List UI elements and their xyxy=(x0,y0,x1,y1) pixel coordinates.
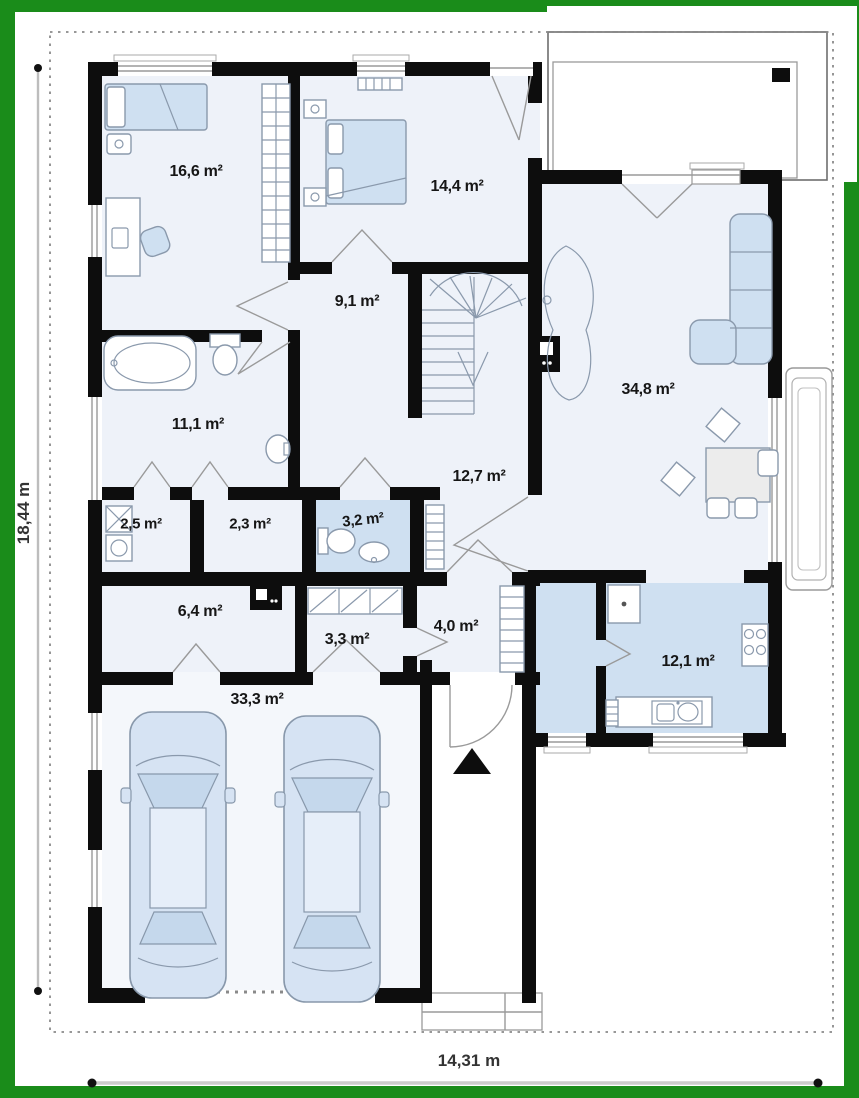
dimension-line-bottom xyxy=(88,1079,823,1088)
room-label-utility: 6,4 m² xyxy=(178,603,222,621)
toilet-bathroom xyxy=(210,334,240,375)
radiator-kitchen xyxy=(606,700,618,726)
kitchen-counter-sink xyxy=(616,697,712,727)
dimension-line-left xyxy=(34,64,42,995)
bathtub xyxy=(104,336,196,390)
room-label-bedroom-1: 16,6 m² xyxy=(169,163,222,181)
room-label-garage: 33,3 m² xyxy=(230,691,283,709)
dimension-height-label: 18,44 m xyxy=(14,482,34,544)
window-left-garage2 xyxy=(88,850,102,907)
room-label-hall-upper: 9,1 m² xyxy=(335,293,379,311)
room-label-vestibule: 4,0 m² xyxy=(434,618,478,636)
window-left-garage1 xyxy=(88,713,102,770)
window-bedroom2-top xyxy=(353,55,409,76)
dimension-width-label: 14,31 m xyxy=(438,1051,500,1071)
closet-hall xyxy=(426,505,444,569)
sink-bathroom xyxy=(266,435,290,463)
window-kitchen1 xyxy=(544,733,590,753)
window-kitchen2 xyxy=(649,733,747,753)
window-left-bedroom1 xyxy=(88,205,102,257)
closet-vestibule xyxy=(500,586,524,672)
room-label-bedroom-2: 14,4 m² xyxy=(430,178,483,196)
floor-plan-drawing xyxy=(0,0,859,1098)
terrace-steps-right xyxy=(786,368,832,590)
room-label-living-room: 34,8 m² xyxy=(621,381,674,399)
wardrobe-storage33 xyxy=(308,588,402,614)
room-label-bathroom: 11,1 m² xyxy=(172,416,224,434)
nightstand-bedroom2-b xyxy=(304,188,326,206)
desk-bedroom1 xyxy=(106,198,140,276)
nightstand-bedroom1 xyxy=(107,134,131,154)
fridge xyxy=(608,585,640,623)
stove xyxy=(742,624,768,666)
room-label-laundry: 2,5 m² xyxy=(120,516,162,533)
room-label-closet: 2,3 m² xyxy=(229,516,271,533)
bed-bedroom1 xyxy=(105,84,207,130)
bed-bedroom2 xyxy=(326,120,406,204)
radiator-bedroom2 xyxy=(358,78,402,90)
window-left-bathroom xyxy=(88,397,102,500)
wardrobe-bedroom1 xyxy=(262,84,290,262)
entrance-arrow-icon xyxy=(453,748,491,774)
car-1 xyxy=(121,712,235,998)
sink-wc xyxy=(359,542,389,563)
window-bedroom1-top xyxy=(114,55,216,76)
toilet-wc xyxy=(318,528,355,554)
laundry-sink xyxy=(106,535,132,561)
room-label-storage: 3,3 m² xyxy=(325,631,369,649)
room-label-kitchen: 12,1 m² xyxy=(661,653,714,671)
floor-plan-page: 16,6 m² 14,4 m² 9,1 m² 11,1 m² 2,5 m² 2,… xyxy=(0,0,859,1098)
room-label-hall-lower: 12,7 m² xyxy=(452,468,505,486)
chimney-duct xyxy=(250,584,282,610)
car-2 xyxy=(275,716,389,1002)
nightstand-bedroom2-a xyxy=(304,100,326,118)
